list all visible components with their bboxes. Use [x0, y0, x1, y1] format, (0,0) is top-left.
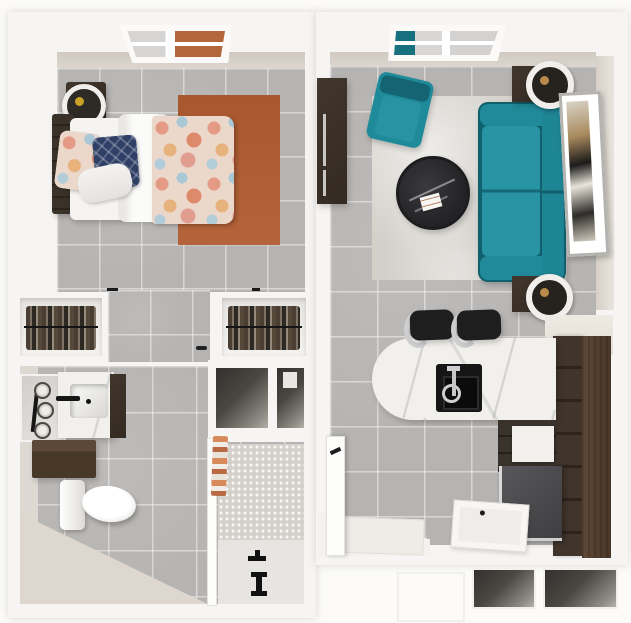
armchair-seat	[374, 95, 422, 143]
wall-recess	[543, 568, 618, 609]
cabinet-handle	[323, 114, 326, 166]
utility-niche-left	[216, 368, 268, 428]
magazine	[420, 193, 443, 212]
open-door-left	[326, 436, 345, 556]
living-window	[388, 25, 506, 61]
wall-recess	[472, 568, 536, 609]
floral-comforter	[152, 116, 234, 224]
door-hinge-mark	[196, 346, 207, 350]
door-panel	[458, 507, 522, 545]
round-coffee-table	[396, 156, 470, 230]
hanging-clothes	[228, 306, 300, 350]
closet-rod	[24, 326, 98, 328]
bar-stool	[456, 309, 501, 341]
niche-item	[283, 372, 297, 388]
abstract-artwork	[566, 101, 595, 242]
door-stop-mark	[252, 288, 260, 291]
floor-plan	[0, 0, 631, 623]
black-sink	[436, 364, 482, 412]
vanity-side-cabinet	[110, 374, 126, 438]
door-threshold	[335, 516, 424, 555]
right-closet	[222, 298, 306, 356]
marble-slab	[512, 426, 554, 462]
closet-hallway	[108, 290, 210, 362]
tall-pantry-panel	[582, 336, 611, 558]
closet-rod	[226, 326, 302, 328]
lamp-finial	[75, 97, 84, 106]
toilet-tank	[60, 480, 85, 530]
door-stop-mark	[107, 288, 118, 291]
cabinet-handle	[323, 170, 326, 196]
mosaic-shower-wall	[218, 444, 304, 540]
towel	[211, 436, 228, 496]
open-door-middle	[450, 499, 529, 552]
sconce-bulb	[34, 382, 51, 399]
black-faucet	[56, 396, 80, 401]
door-handle	[330, 447, 342, 455]
bar-stool	[409, 309, 454, 341]
shower-fixture	[255, 550, 260, 558]
living-window-panes	[394, 31, 498, 55]
floating-shelf	[32, 440, 96, 478]
hanging-clothes	[26, 306, 96, 350]
faucet-handle	[447, 366, 460, 371]
lamp-finial	[540, 76, 549, 85]
sconce-bulb	[37, 402, 54, 419]
media-cabinet	[317, 78, 347, 204]
left-closet	[20, 298, 102, 356]
sconce-bulb	[34, 422, 51, 439]
table-lamp-bottom	[526, 274, 573, 321]
chrome-faucet	[452, 368, 456, 396]
entry-door-outline	[397, 572, 465, 622]
teal-sofa	[478, 102, 566, 282]
shower-fixture	[251, 591, 267, 596]
utility-niche-right	[277, 368, 304, 428]
lamp-finial	[540, 288, 549, 297]
bedroom-window-panes	[119, 31, 225, 57]
sink-drain	[86, 399, 91, 404]
sofa-seat-cushions	[482, 126, 540, 256]
wall-art	[559, 91, 610, 257]
